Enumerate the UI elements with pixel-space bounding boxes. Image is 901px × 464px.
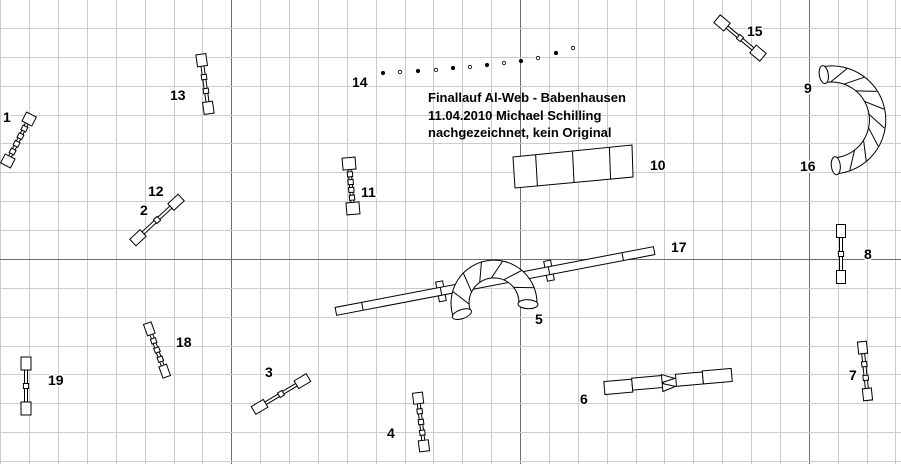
- obstacle-label-12: 12: [148, 183, 164, 199]
- jump-8: [837, 225, 846, 284]
- obstacle-label-1: 1: [3, 109, 11, 125]
- jump-7: [857, 341, 872, 401]
- obstacle-label-5: 5: [535, 311, 543, 327]
- course-drawing: 12345678910111213141516171819: [0, 0, 901, 464]
- obstacle-label-9: 9: [804, 80, 812, 96]
- obstacle-label-8: 8: [864, 246, 872, 262]
- obstacle-label-13: 13: [170, 87, 186, 103]
- obstacle-label-6: 6: [580, 391, 588, 407]
- obstacle-label-14: 14: [352, 74, 368, 90]
- curved-tunnel-9-16: [818, 65, 886, 175]
- obstacles: [1, 15, 886, 452]
- long-jump-10: [513, 145, 633, 188]
- obstacle-label-19: 19: [48, 372, 64, 388]
- grid: [0, 0, 901, 464]
- straight-tunnel-6: [604, 368, 733, 396]
- jump-11: [342, 157, 360, 215]
- course-map: 12345678910111213141516171819 Finallauf …: [0, 0, 901, 464]
- obstacle-label-11: 11: [361, 184, 376, 200]
- weave-poles-14: [381, 46, 574, 74]
- title-line-3: nachgezeichnet, kein Original: [428, 124, 626, 142]
- obstacle-label-18: 18: [176, 334, 192, 350]
- obstacle-label-17: 17: [671, 239, 687, 255]
- obstacle-label-7: 7: [849, 367, 857, 383]
- jump-4: [412, 392, 429, 452]
- obstacle-label-16: 16: [800, 158, 816, 174]
- jump-18: [143, 322, 170, 378]
- title-line-2: 11.04.2010 Michael Schilling: [428, 107, 626, 125]
- jump-13: [196, 54, 214, 115]
- obstacle-label-4: 4: [387, 425, 395, 441]
- title-line-1: Finallauf Al-Web - Babenhausen: [428, 89, 626, 107]
- title-block: Finallauf Al-Web - Babenhausen 11.04.201…: [428, 89, 626, 142]
- curved-tunnel-5: [451, 260, 538, 321]
- obstacle-labels: 12345678910111213141516171819: [3, 23, 872, 441]
- obstacle-label-2: 2: [140, 202, 148, 218]
- obstacle-label-3: 3: [265, 364, 273, 380]
- obstacle-label-10: 10: [650, 157, 666, 173]
- obstacle-label-15: 15: [747, 23, 763, 39]
